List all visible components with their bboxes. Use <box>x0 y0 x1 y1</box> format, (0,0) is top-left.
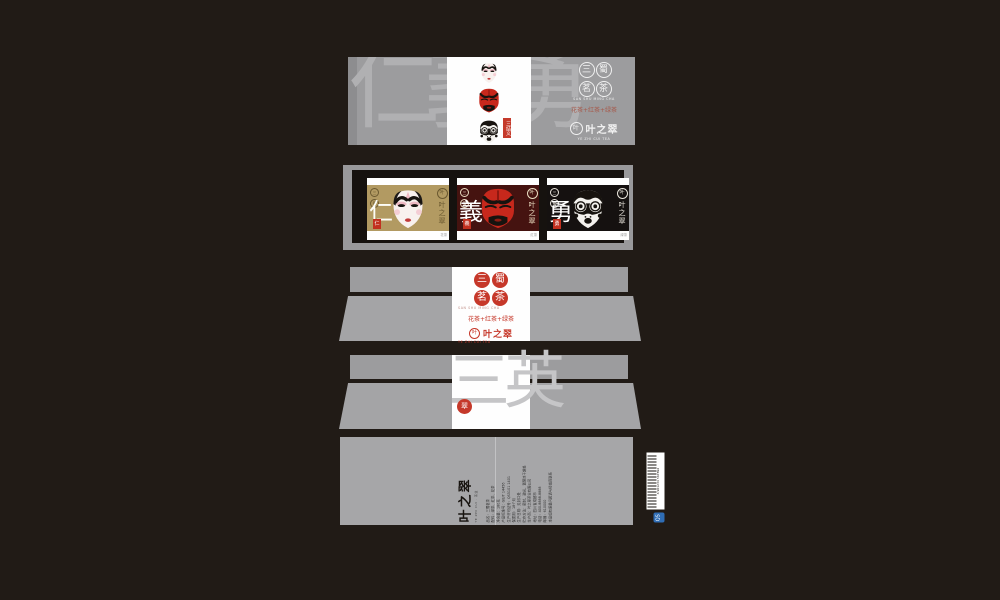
seal-char: 茶 <box>596 81 612 97</box>
seal-char: 三 <box>579 62 595 78</box>
card-face-art <box>566 186 610 235</box>
card-brand-column: 叶 叶之翠 <box>616 188 628 225</box>
sleeve-red-tag: 三结义 <box>503 118 511 138</box>
brand-circle-icon: 叶 <box>527 188 538 199</box>
bottom-info-block: 叶之翠 YE ZHI CUI · 茶业 品名：三蜀茗茶 配料：绿茶、红茶、花茶 … <box>455 453 620 523</box>
brand-circle-icon: 叶 <box>617 188 628 199</box>
mini-seal-char: 三 <box>370 188 379 197</box>
card-bottom-band: 红茶 <box>457 231 539 240</box>
seal-char: 茗 <box>474 290 490 306</box>
card-top-band <box>367 178 449 185</box>
seal-char: 茗 <box>579 81 595 97</box>
regulatory-info-text: 品名：三蜀茗茶 配料：绿茶、红茶、花茶 净含量：180克 产品标准号：GB/T … <box>486 453 554 523</box>
barcode-row: QS 6 901234 567892 <box>647 453 665 523</box>
brand-latin-name: YE ZHI CUI TEA <box>458 340 524 344</box>
brand-circle-icon: 叶 <box>469 328 480 339</box>
card-brand-column: 叶 叶之翠 <box>436 188 448 225</box>
card-tea-note: 红茶 <box>530 232 537 237</box>
lid-center-strip: 三 蜀 茗 茶 SAN SHU MING CHA 花茶+红茶+绿茶 叶 叶之翠 … <box>452 267 530 341</box>
sleeve-fold-edge <box>348 57 357 145</box>
tea-card-yong: 三 蜀 勇 勇 叶 叶之翠 绿茶 <box>547 178 629 240</box>
tea-types-line: 花茶+红茶+绿茶 <box>561 105 627 114</box>
tea-types-line: 花茶+红茶+绿茶 <box>468 314 514 323</box>
brand-name: 叶之翠 <box>586 121 619 136</box>
seal-char: 茶 <box>492 290 508 306</box>
seal-char: 三 <box>474 272 490 288</box>
black-face-mask-icon <box>474 118 504 145</box>
brand-name-vertical: 叶之翠 <box>437 201 447 225</box>
black-face-mask-icon <box>566 186 610 231</box>
white-face-mask-icon <box>386 186 430 231</box>
barcode-bars-icon <box>648 455 657 508</box>
sleeve-center-strip: 三结义 <box>447 57 531 145</box>
barcode-number: 6 901234 567892 <box>657 454 661 507</box>
brand-latin-name: YE ZHI CUI TEA <box>561 137 627 141</box>
brand-name-vertical: 叶之翠 <box>527 201 537 225</box>
product-seal-logo: 三 蜀 茗 茶 <box>561 62 627 97</box>
brand-lockup: 叶 叶之翠 <box>469 327 513 340</box>
qs-certification-icon: QS <box>654 513 665 523</box>
seal-char: 蜀 <box>596 62 612 78</box>
brand-name: 叶之翠 <box>455 453 474 523</box>
red-seal-stamp: 勇 <box>553 219 561 229</box>
packaging-presentation: 仁義勇 三结义 三 蜀 茗 茶 SAN SHU MING CHA 花茶+红茶+绿… <box>0 0 1000 600</box>
card-face-art <box>386 186 430 235</box>
card-face-art <box>476 186 520 235</box>
card-bottom-band: 绿茶 <box>547 231 629 240</box>
red-face-mask-icon <box>476 186 520 231</box>
brand-name: 叶之翠 <box>483 327 513 340</box>
card-bottom-band: 花茶 <box>367 231 449 240</box>
brand-circle-icon: 叶 <box>570 122 583 135</box>
brand-subtitle: YE ZHI CUI · 茶业 <box>474 453 479 523</box>
round-red-seal: 翠 <box>457 399 472 414</box>
card-top-band <box>547 178 629 185</box>
seal-char: 蜀 <box>492 272 508 288</box>
brand-name-vertical: 叶之翠 <box>617 201 627 225</box>
panel-open-tray: 三 蜀 仁 仁 叶 叶之翠 花茶 三 <box>343 165 633 250</box>
card-tea-note: 绿茶 <box>620 232 627 237</box>
mini-seal-char: 三 <box>550 188 559 197</box>
product-latin-name: SAN SHU MING CHA <box>561 97 627 101</box>
red-seal-stamp: 仁 <box>373 219 381 229</box>
card-brand-column: 叶 叶之翠 <box>526 188 538 225</box>
white-face-mask-icon <box>476 61 502 84</box>
tea-card-ren: 三 蜀 仁 仁 叶 叶之翠 花茶 <box>367 178 449 240</box>
tea-card-yi: 三 蜀 義 義 叶 叶之翠 红茶 <box>457 178 539 240</box>
brand-lockup: 叶 叶之翠 <box>561 121 627 136</box>
card-top-band <box>457 178 539 185</box>
product-seal-logo-red: 三 蜀 茗 茶 <box>474 272 508 306</box>
product-latin-name: SAN SHU MING CHA <box>458 306 524 310</box>
mini-seal-char: 三 <box>460 188 469 197</box>
card-tea-note: 花茶 <box>440 232 447 237</box>
brand-circle-icon: 叶 <box>437 188 448 199</box>
panel-sleeve-front: 仁義勇 三结义 三 蜀 茗 茶 SAN SHU MING CHA 花茶+红茶+绿… <box>348 57 635 145</box>
lid-back-strip <box>452 355 530 429</box>
sleeve-brand-block: 三 蜀 茗 茶 SAN SHU MING CHA 花茶+红茶+绿茶 叶 叶之翠 … <box>561 62 627 144</box>
barcode: 6 901234 567892 <box>647 453 665 510</box>
red-seal-stamp: 義 <box>463 219 471 229</box>
red-face-mask-icon <box>474 87 504 114</box>
